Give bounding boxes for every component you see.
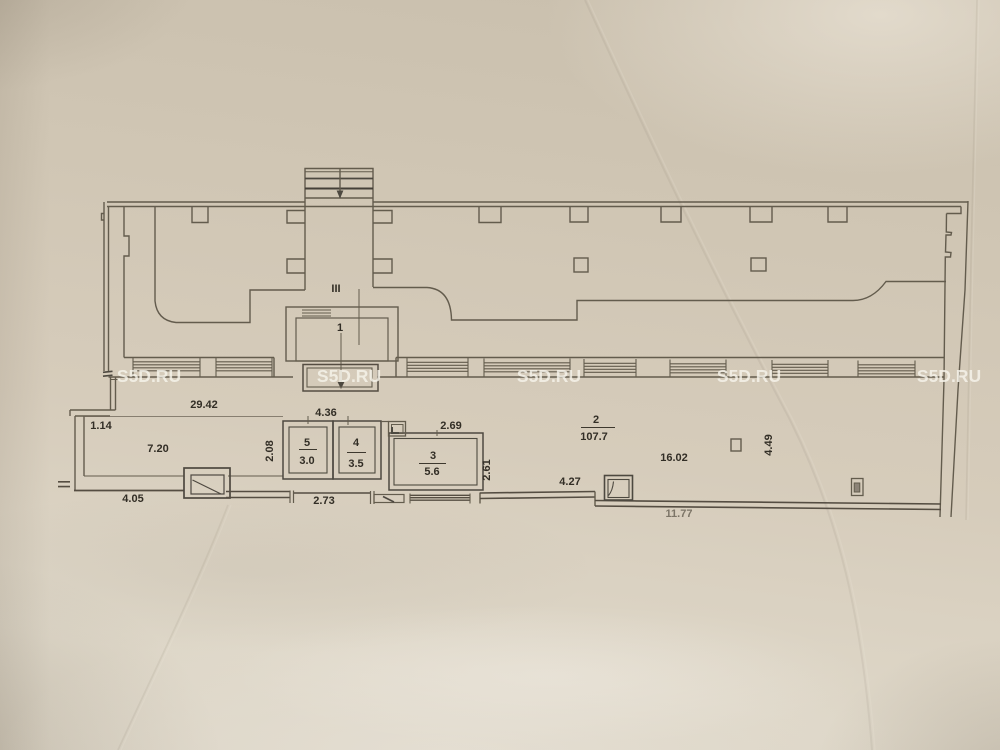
svg-text:7.20: 7.20 — [147, 443, 168, 455]
svg-text:S5D.RU: S5D.RU — [117, 366, 181, 386]
svg-text:S5D.RU: S5D.RU — [517, 366, 581, 386]
svg-text:2.61: 2.61 — [481, 459, 493, 480]
svg-text:2: 2 — [593, 414, 599, 426]
svg-text:1: 1 — [337, 322, 343, 334]
svg-text:S5D.RU: S5D.RU — [917, 366, 981, 386]
svg-text:3: 3 — [430, 450, 436, 462]
svg-text:S5D.RU: S5D.RU — [717, 366, 781, 386]
svg-text:4.05: 4.05 — [122, 493, 143, 505]
svg-text:III: III — [331, 283, 340, 295]
svg-text:2.69: 2.69 — [440, 420, 461, 432]
svg-text:11.77: 11.77 — [666, 508, 693, 520]
svg-text:5.6: 5.6 — [424, 466, 439, 478]
svg-text:4.49: 4.49 — [763, 434, 775, 455]
svg-text:4.27: 4.27 — [559, 476, 580, 488]
svg-text:2.73: 2.73 — [313, 495, 334, 507]
svg-text:5: 5 — [304, 437, 310, 449]
svg-text:3.5: 3.5 — [348, 458, 363, 470]
svg-text:107.7: 107.7 — [580, 431, 608, 443]
svg-text:4: 4 — [353, 437, 360, 449]
svg-text:29.42: 29.42 — [190, 399, 218, 411]
svg-text:16.02: 16.02 — [660, 452, 688, 464]
svg-text:3.0: 3.0 — [299, 455, 314, 467]
svg-text:1.14: 1.14 — [90, 420, 112, 432]
svg-text:4.36: 4.36 — [315, 407, 336, 419]
svg-text:2.08: 2.08 — [264, 440, 276, 461]
svg-text:S5D.RU: S5D.RU — [317, 366, 381, 386]
